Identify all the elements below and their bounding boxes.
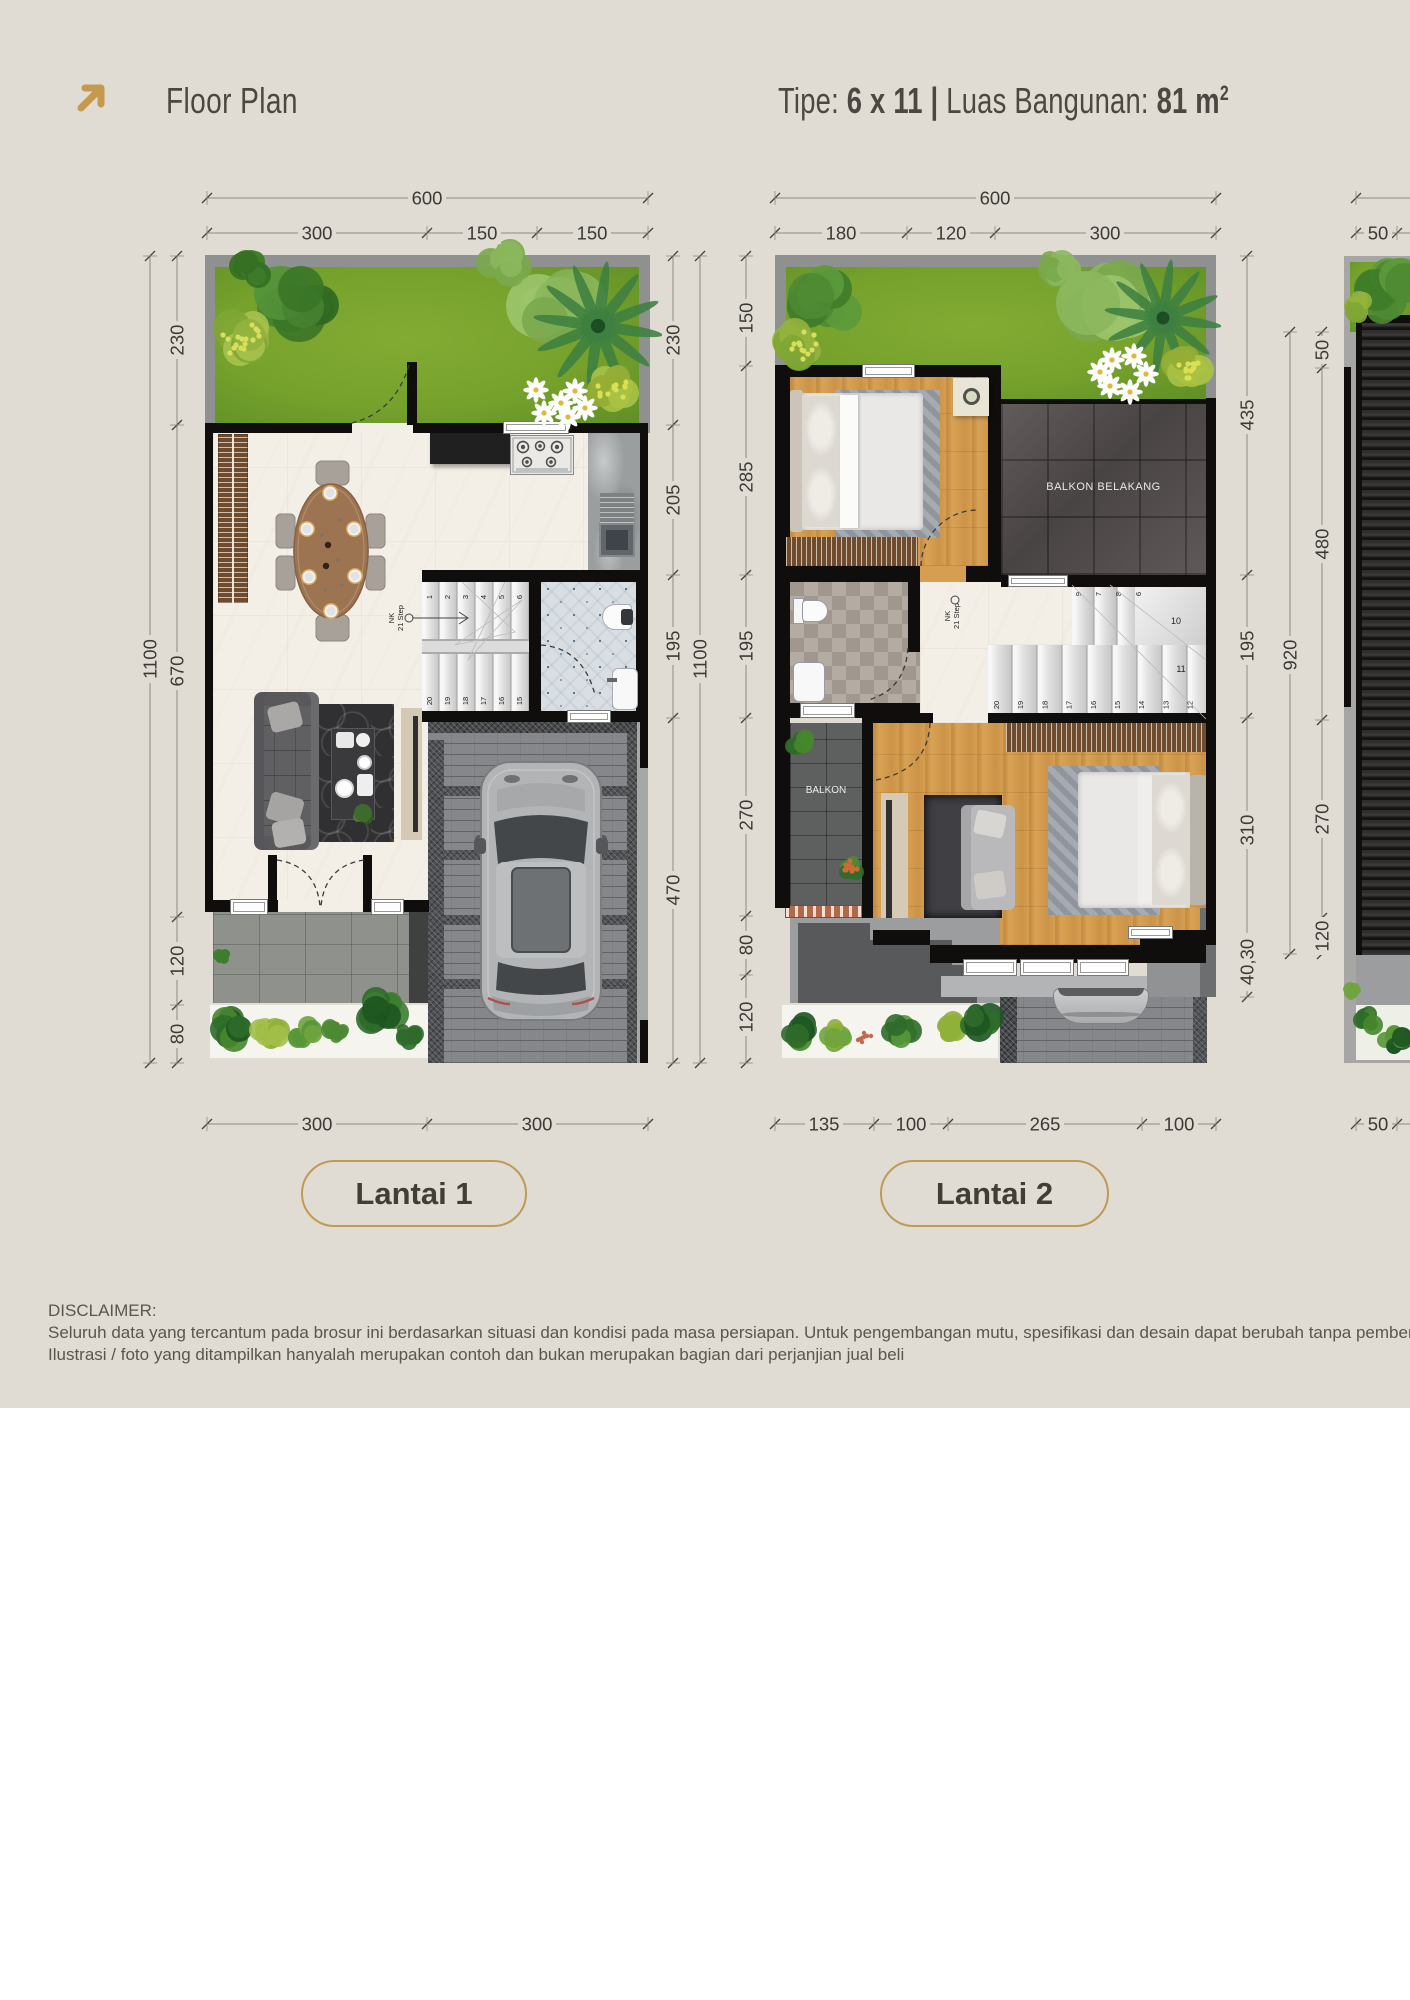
svg-text:600: 600 — [412, 188, 443, 209]
svg-text:300: 300 — [522, 1114, 553, 1135]
svg-text:9: 9 — [1074, 592, 1083, 596]
svg-text:20: 20 — [992, 701, 1001, 709]
svg-text:300: 300 — [1090, 223, 1121, 244]
svg-text:14: 14 — [1137, 701, 1146, 709]
svg-text:435: 435 — [1237, 400, 1258, 431]
svg-text:135: 135 — [809, 1114, 840, 1135]
svg-text:230: 230 — [167, 325, 188, 356]
svg-text:NK: NK — [943, 611, 952, 621]
svg-text:2: 2 — [443, 595, 452, 599]
svg-text:205: 205 — [663, 485, 684, 516]
svg-text:195: 195 — [663, 631, 684, 662]
svg-text:15: 15 — [515, 697, 524, 705]
svg-text:18: 18 — [1040, 701, 1049, 709]
svg-text:100: 100 — [1164, 1114, 1195, 1135]
svg-text:3: 3 — [461, 595, 470, 599]
svg-text:180: 180 — [826, 223, 857, 244]
svg-text:310: 310 — [1237, 815, 1258, 846]
svg-text:150: 150 — [467, 223, 498, 244]
svg-text:195: 195 — [1237, 631, 1258, 662]
svg-text:270: 270 — [736, 800, 757, 831]
svg-text:80: 80 — [736, 935, 757, 956]
svg-text:920: 920 — [1280, 640, 1301, 671]
svg-text:40,30: 40,30 — [1237, 939, 1258, 985]
svg-text:670: 670 — [167, 656, 188, 687]
svg-text:285: 285 — [736, 462, 757, 493]
svg-text:300: 300 — [302, 1114, 333, 1135]
svg-text:150: 150 — [577, 223, 608, 244]
svg-text:80: 80 — [167, 1024, 188, 1045]
svg-text:19: 19 — [1016, 701, 1025, 709]
svg-text:230: 230 — [663, 325, 684, 356]
svg-text:13: 13 — [1161, 701, 1170, 709]
svg-text:6: 6 — [515, 595, 524, 599]
svg-text:16: 16 — [497, 697, 506, 705]
svg-text:480: 480 — [1312, 529, 1333, 560]
svg-text:NK: NK — [387, 613, 396, 623]
svg-text:1: 1 — [425, 595, 434, 599]
svg-text:4: 4 — [479, 595, 488, 599]
svg-text:15: 15 — [1113, 701, 1122, 709]
svg-text:17: 17 — [1065, 701, 1074, 709]
svg-text:120: 120 — [936, 223, 967, 244]
svg-text:50: 50 — [1368, 1114, 1389, 1135]
svg-text:21 Step: 21 Step — [952, 603, 961, 629]
svg-text:1100: 1100 — [140, 639, 161, 679]
svg-text:17: 17 — [479, 697, 488, 705]
svg-text:50: 50 — [1312, 340, 1333, 361]
svg-text:120: 120 — [167, 946, 188, 977]
svg-text:18: 18 — [461, 697, 470, 705]
svg-text:120: 120 — [736, 1002, 757, 1033]
svg-text:7: 7 — [1094, 592, 1103, 596]
svg-text:265: 265 — [1030, 1114, 1061, 1135]
svg-text:195: 195 — [736, 631, 757, 662]
svg-text:20: 20 — [425, 697, 434, 705]
svg-text:120: 120 — [1312, 921, 1333, 952]
svg-text:270: 270 — [1312, 804, 1333, 835]
svg-text:300: 300 — [302, 223, 333, 244]
svg-text:470: 470 — [663, 875, 684, 906]
svg-text:50: 50 — [1368, 223, 1389, 244]
svg-text:6: 6 — [1134, 592, 1143, 596]
svg-text:150: 150 — [736, 303, 757, 334]
svg-text:21 Step: 21 Step — [396, 605, 405, 631]
svg-text:100: 100 — [896, 1114, 927, 1135]
svg-text:12: 12 — [1186, 701, 1195, 709]
svg-text:600: 600 — [980, 188, 1011, 209]
svg-text:16: 16 — [1089, 701, 1098, 709]
svg-text:19: 19 — [443, 697, 452, 705]
svg-text:1100: 1100 — [690, 639, 711, 679]
svg-text:10: 10 — [1171, 616, 1181, 626]
svg-text:11: 11 — [1176, 664, 1185, 674]
